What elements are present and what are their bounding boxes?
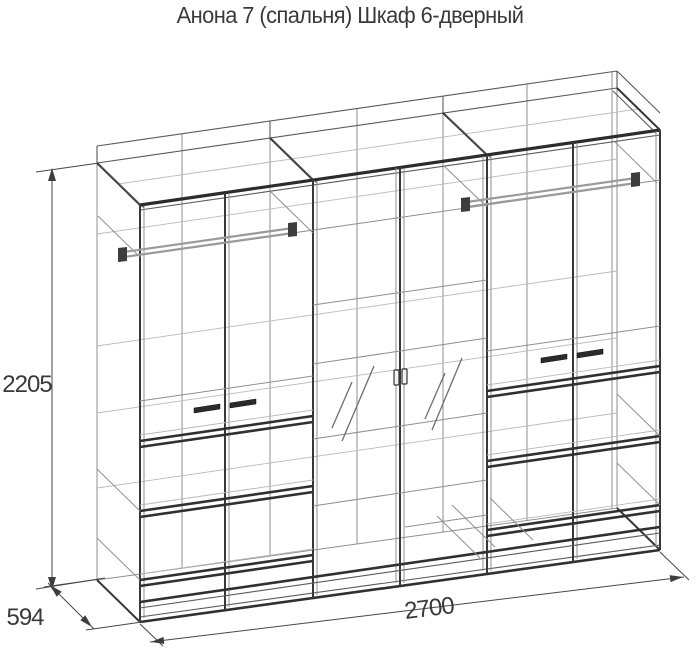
wardrobe-isometric-drawing: 2205 594 2700 <box>0 0 700 650</box>
rod-bracket <box>631 172 640 187</box>
door-handles <box>194 349 603 413</box>
hanging-rod-left <box>98 191 313 262</box>
hanging-rod-right <box>444 141 657 212</box>
width-dimension-label: 2700 <box>403 592 456 625</box>
carcass-outline <box>97 508 660 622</box>
side-face-details <box>97 394 660 580</box>
handle-right-a <box>541 354 567 363</box>
handle-left-b <box>230 399 256 408</box>
drawer-bands-left <box>140 410 313 586</box>
rod-bracket <box>288 222 297 237</box>
height-dimension: 2205 <box>2 163 105 590</box>
handle-right-b <box>577 349 603 358</box>
height-dimension-label: 2205 <box>2 371 52 398</box>
top-face <box>97 71 660 210</box>
handle-middle-a <box>394 370 399 385</box>
rod-bracket <box>118 247 127 262</box>
drawing-page: Анона 7 (спальня) Шкаф 6-дверный <box>0 0 700 650</box>
depth-dimension-label: 594 <box>6 604 44 631</box>
rod-bracket <box>461 197 470 212</box>
handle-left-a <box>194 404 220 413</box>
handle-middle-b <box>402 369 407 384</box>
width-dimension: 2700 <box>140 552 689 646</box>
